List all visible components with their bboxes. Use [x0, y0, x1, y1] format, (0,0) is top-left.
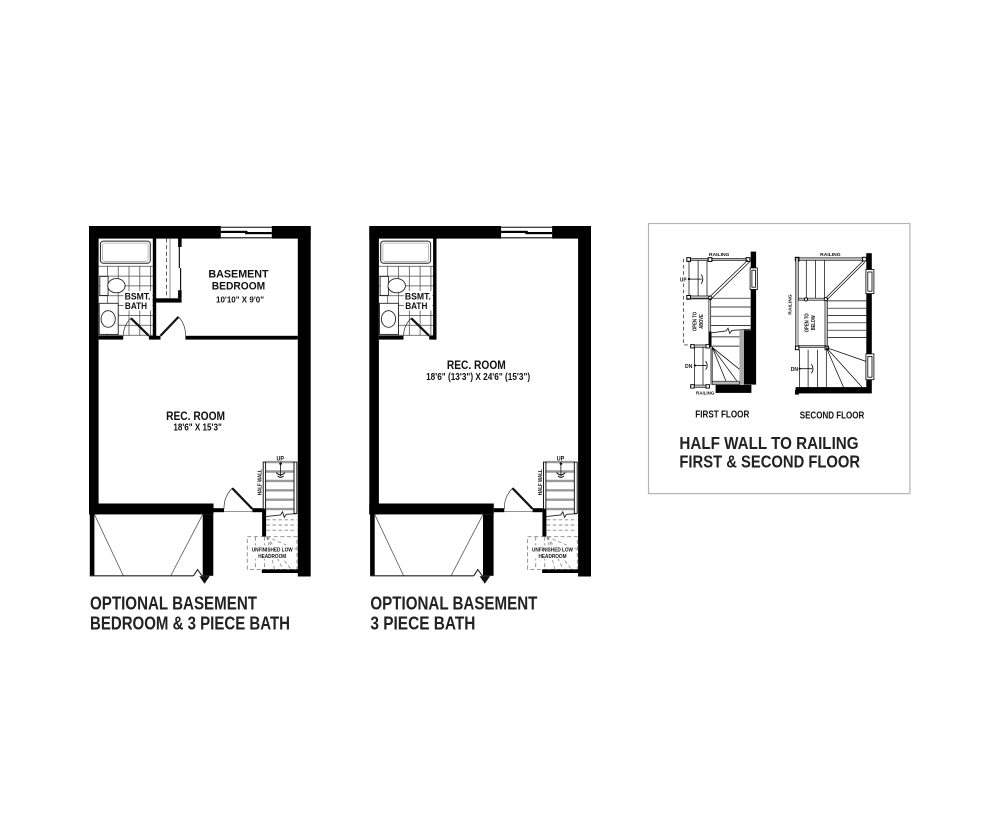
- svg-text:BEDROOM: BEDROOM: [212, 281, 265, 293]
- svg-text:BSMT.: BSMT.: [405, 292, 431, 302]
- svg-text:ABOVE: ABOVE: [699, 314, 705, 329]
- svg-text:OPEN TO: OPEN TO: [804, 313, 810, 333]
- svg-text:DN: DN: [791, 367, 798, 373]
- svg-text:RAILING: RAILING: [709, 252, 730, 257]
- svg-text:BATH: BATH: [125, 301, 147, 311]
- svg-text:HEADROOM: HEADROOM: [258, 554, 286, 560]
- svg-text:FIRST & SECOND FLOOR: FIRST & SECOND FLOOR: [679, 451, 860, 471]
- svg-text:HEADROOM: HEADROOM: [539, 554, 567, 560]
- svg-text:UNFINISHED LOW: UNFINISHED LOW: [532, 548, 573, 554]
- svg-text:UNFINISHED LOW: UNFINISHED LOW: [252, 548, 293, 554]
- svg-text:OPTIONAL BASEMENT: OPTIONAL BASEMENT: [370, 594, 537, 614]
- svg-text:UP: UP: [557, 456, 565, 462]
- svg-text:FIRST FLOOR: FIRST FLOOR: [695, 410, 749, 421]
- svg-text:3 PIECE BATH: 3 PIECE BATH: [370, 613, 475, 633]
- svg-text:10'10" X 9'0": 10'10" X 9'0": [216, 295, 264, 305]
- svg-text:OPTIONAL BASEMENT: OPTIONAL BASEMENT: [90, 594, 257, 614]
- svg-text:REC. ROOM: REC. ROOM: [447, 358, 506, 372]
- svg-text:BASEMENT: BASEMENT: [208, 269, 268, 281]
- svg-text:HALF WALL TO RAILING: HALF WALL TO RAILING: [679, 433, 858, 453]
- svg-text:UP: UP: [276, 456, 284, 462]
- svg-text:HALF WALL: HALF WALL: [538, 469, 544, 495]
- svg-text:RAILING: RAILING: [820, 252, 841, 257]
- svg-text:18'6" X 15'3": 18'6" X 15'3": [173, 423, 222, 434]
- svg-text:HALF WALL: HALF WALL: [258, 469, 264, 495]
- svg-text:RAILING: RAILING: [696, 391, 715, 396]
- svg-text:SECOND FLOOR: SECOND FLOOR: [800, 411, 865, 422]
- svg-text:BEDROOM & 3 PIECE BATH: BEDROOM & 3 PIECE BATH: [90, 613, 290, 633]
- svg-text:BATH: BATH: [405, 301, 427, 311]
- svg-text:18'6" (13'3") X 24'6" (15'3"): 18'6" (13'3") X 24'6" (15'3"): [426, 372, 530, 383]
- svg-text:REC. ROOM: REC. ROOM: [166, 409, 225, 423]
- svg-text:RAILING: RAILING: [787, 294, 792, 315]
- svg-text:OPEN TO: OPEN TO: [692, 311, 698, 331]
- svg-text:UP: UP: [680, 277, 687, 283]
- svg-text:BSMT.: BSMT.: [125, 292, 151, 302]
- svg-text:BELOW: BELOW: [811, 315, 817, 331]
- svg-text:DN: DN: [685, 364, 692, 370]
